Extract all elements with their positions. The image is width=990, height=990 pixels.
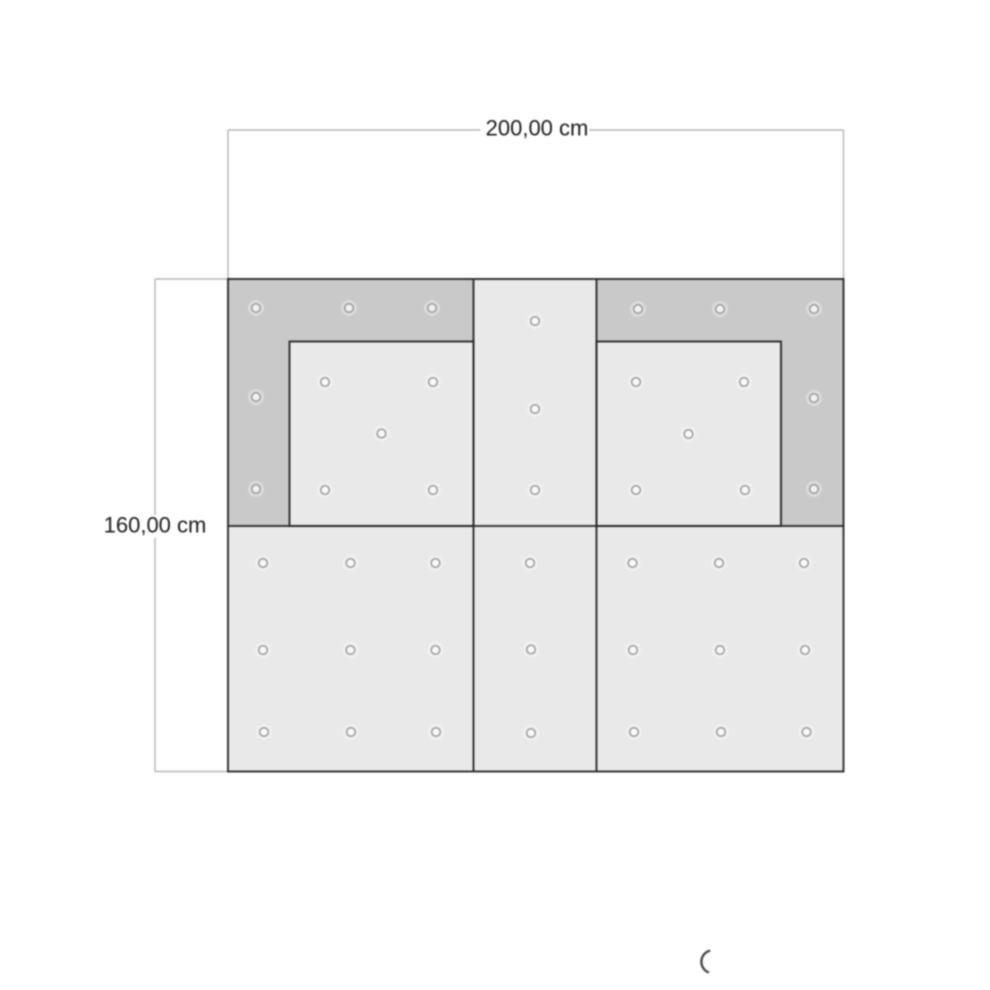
svg-text:160,00 cm: 160,00 cm: [104, 513, 207, 538]
svg-text:200,00 cm: 200,00 cm: [486, 116, 589, 141]
